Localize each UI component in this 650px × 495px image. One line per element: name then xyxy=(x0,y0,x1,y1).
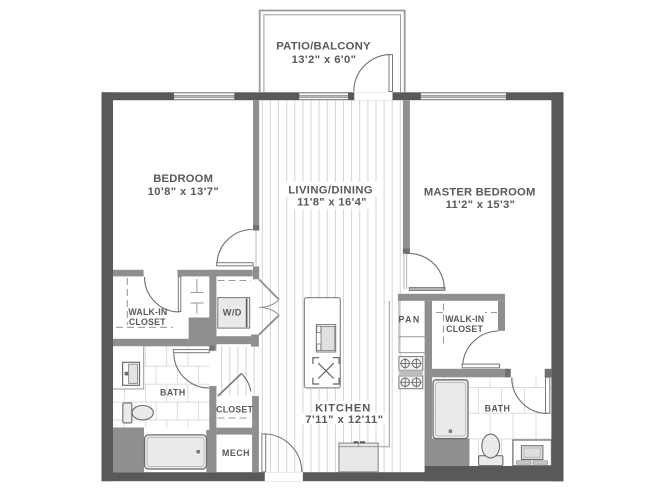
svg-text:WALK-IN: WALK-IN xyxy=(128,307,167,317)
svg-text:BATH: BATH xyxy=(485,403,511,413)
svg-text:BATH: BATH xyxy=(160,387,186,397)
svg-text:13'2" x 6'0": 13'2" x 6'0" xyxy=(292,54,357,66)
svg-text:11'8" x 16'4": 11'8" x 16'4" xyxy=(297,197,367,209)
svg-text:MASTER BEDROOM: MASTER BEDROOM xyxy=(424,186,536,198)
svg-text:KITCHEN: KITCHEN xyxy=(315,402,371,414)
svg-text:PATIO/BALCONY: PATIO/BALCONY xyxy=(276,40,371,52)
svg-text:CLOSET: CLOSET xyxy=(216,404,253,414)
svg-text:WALK-IN: WALK-IN xyxy=(445,314,484,324)
svg-text:CLOSET: CLOSET xyxy=(446,324,483,334)
svg-text:7'11" x 12'11": 7'11" x 12'11" xyxy=(305,414,383,426)
svg-text:BEDROOM: BEDROOM xyxy=(153,173,213,185)
svg-text:MECH: MECH xyxy=(222,448,250,458)
svg-text:11'2" x 15'3": 11'2" x 15'3" xyxy=(446,199,516,211)
svg-text:PAN: PAN xyxy=(399,315,421,325)
svg-text:10'8" x 13'7": 10'8" x 13'7" xyxy=(148,186,220,198)
svg-text:W/D: W/D xyxy=(223,308,242,318)
svg-text:LIVING/DINING: LIVING/DINING xyxy=(288,184,373,196)
svg-text:CLOSET: CLOSET xyxy=(129,317,166,327)
